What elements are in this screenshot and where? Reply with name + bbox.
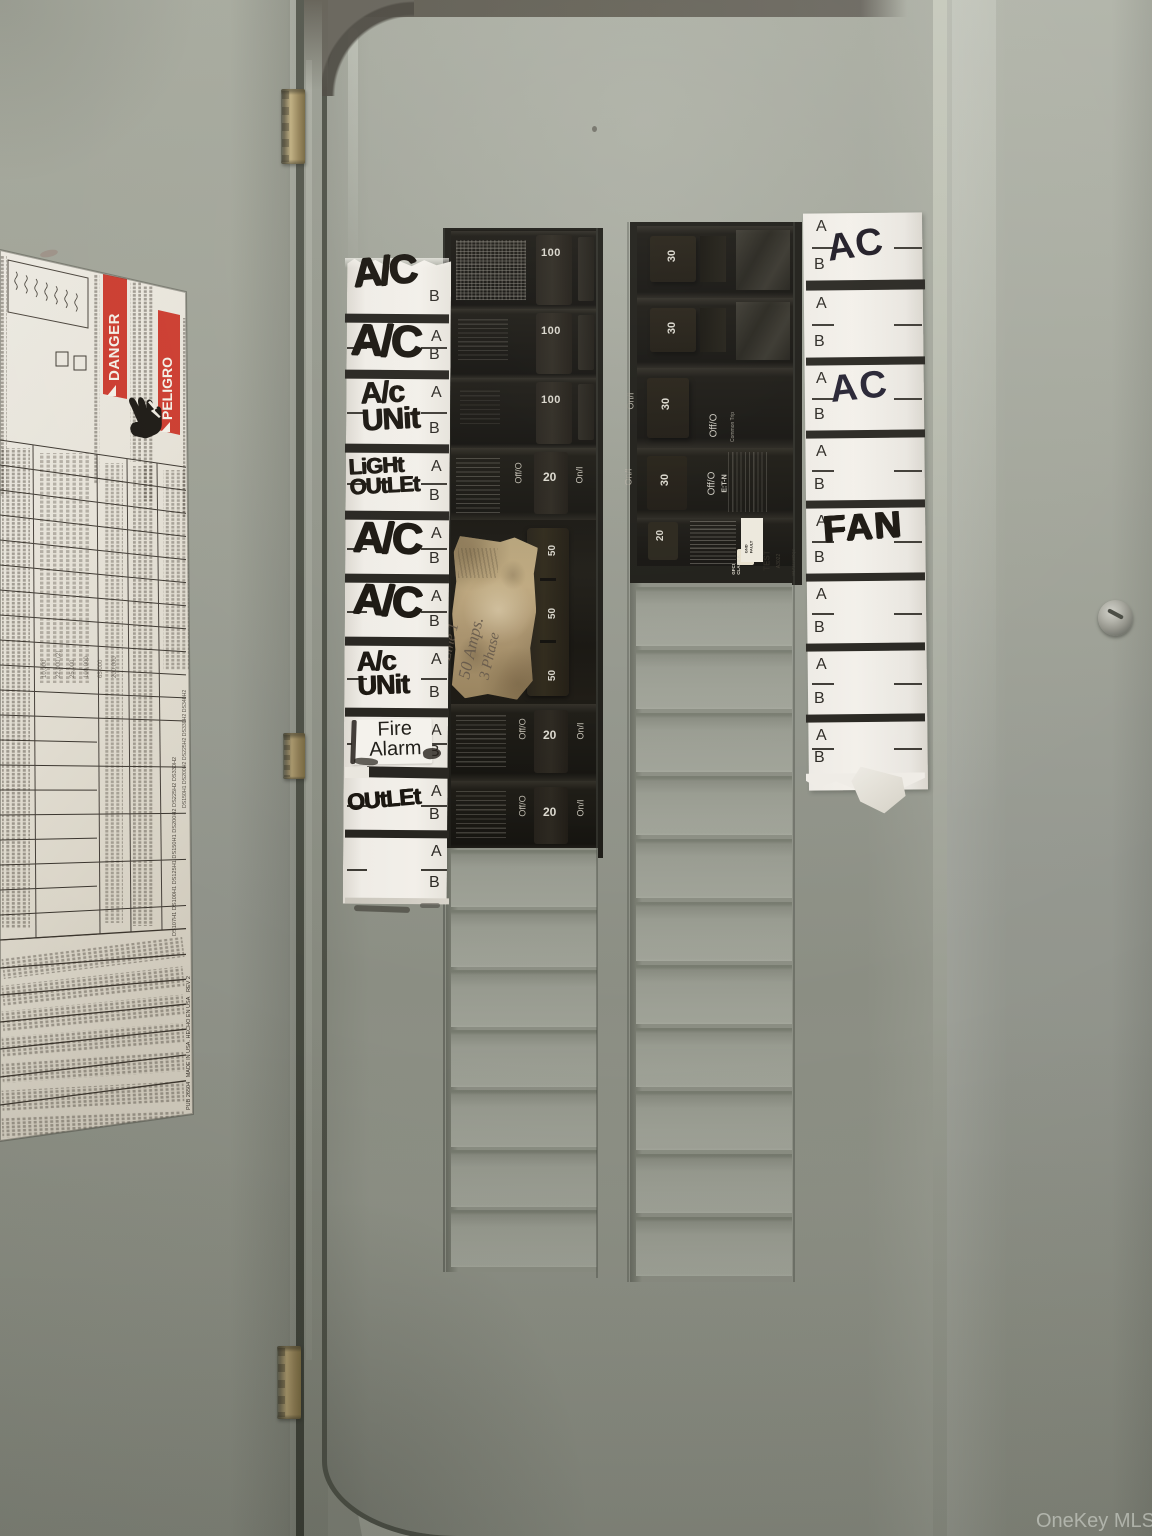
svg-text:100,000: 100,000 (84, 656, 90, 678)
svg-text:22,000 (2): 22,000 (2) (56, 651, 62, 678)
svg-text:25,000: 25,000 (70, 659, 76, 678)
svg-text:10,000: 10,000 (42, 659, 48, 678)
svg-text:DS150H1 DS200H2 DS225H2 DS330H: DS150H1 DS200H2 DS225H2 DS330H2 DS340H2 (182, 690, 188, 808)
svg-text:DANGER: DANGER (106, 313, 123, 381)
svg-text:200,000: 200,000 (112, 656, 118, 678)
svg-text:65,000: 65,000 (98, 659, 104, 678)
svg-text:DS107H1 DS100H1 DS125H1 DS1: DS107H1 DS100H1 DS125H1 DS150H1 DS200H2 … (172, 757, 178, 936)
